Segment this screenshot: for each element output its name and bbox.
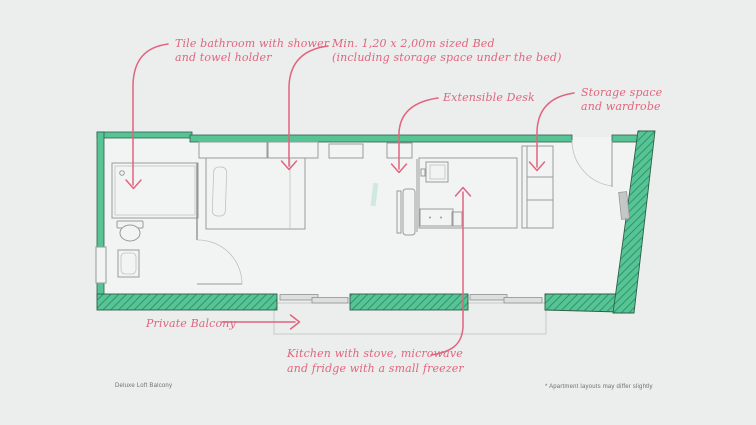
- label-kitchen: and fridge with a small freezer: [287, 362, 464, 375]
- extensible-desk: [403, 189, 415, 235]
- toilet-icon: [120, 225, 140, 241]
- sliding-window-panel: [470, 295, 507, 301]
- wall-bottom-left: [97, 294, 277, 310]
- label-bed: (including storage space under the bed): [332, 51, 562, 64]
- label-storage: Storage space: [581, 86, 663, 99]
- wall-bottom-right: [545, 294, 623, 312]
- label-bed: Min. 1,20 x 2,00m sized Bed: [331, 37, 495, 50]
- label-balcony: Private Balcony: [145, 317, 237, 330]
- plan-title: Deluxe Loft Balcony: [115, 383, 172, 389]
- shower-tray: [112, 163, 198, 218]
- wall-top-main: [190, 135, 572, 142]
- wall-bottom-middle: [350, 294, 468, 310]
- floor-plan: Tile bathroom with shower and towel hold…: [0, 0, 756, 425]
- wall-cabinet: [329, 144, 363, 158]
- wall-top-left: [97, 132, 192, 138]
- label-bathroom: Tile bathroom with shower: [175, 37, 330, 50]
- wall-top-right: [612, 135, 639, 142]
- label-desk: Extensible Desk: [442, 91, 535, 104]
- label-storage: and wardrobe: [581, 100, 661, 113]
- footer: Deluxe Loft Balcony * Apartment layouts …: [115, 383, 653, 390]
- sliding-window-panel: [504, 298, 542, 304]
- drawer-knob: [440, 217, 442, 219]
- drawer-knob: [429, 217, 431, 219]
- label-kitchen: Kitchen with stove, microwave: [286, 347, 463, 360]
- headboard-shelf: [199, 142, 267, 158]
- sliding-door-panel: [312, 298, 348, 304]
- wall-pillar: [96, 247, 106, 283]
- headboard-shelf: [268, 142, 318, 158]
- disclaimer: * Apartment layouts may differ slightly: [545, 384, 653, 390]
- label-bathroom: and towel holder: [175, 51, 272, 64]
